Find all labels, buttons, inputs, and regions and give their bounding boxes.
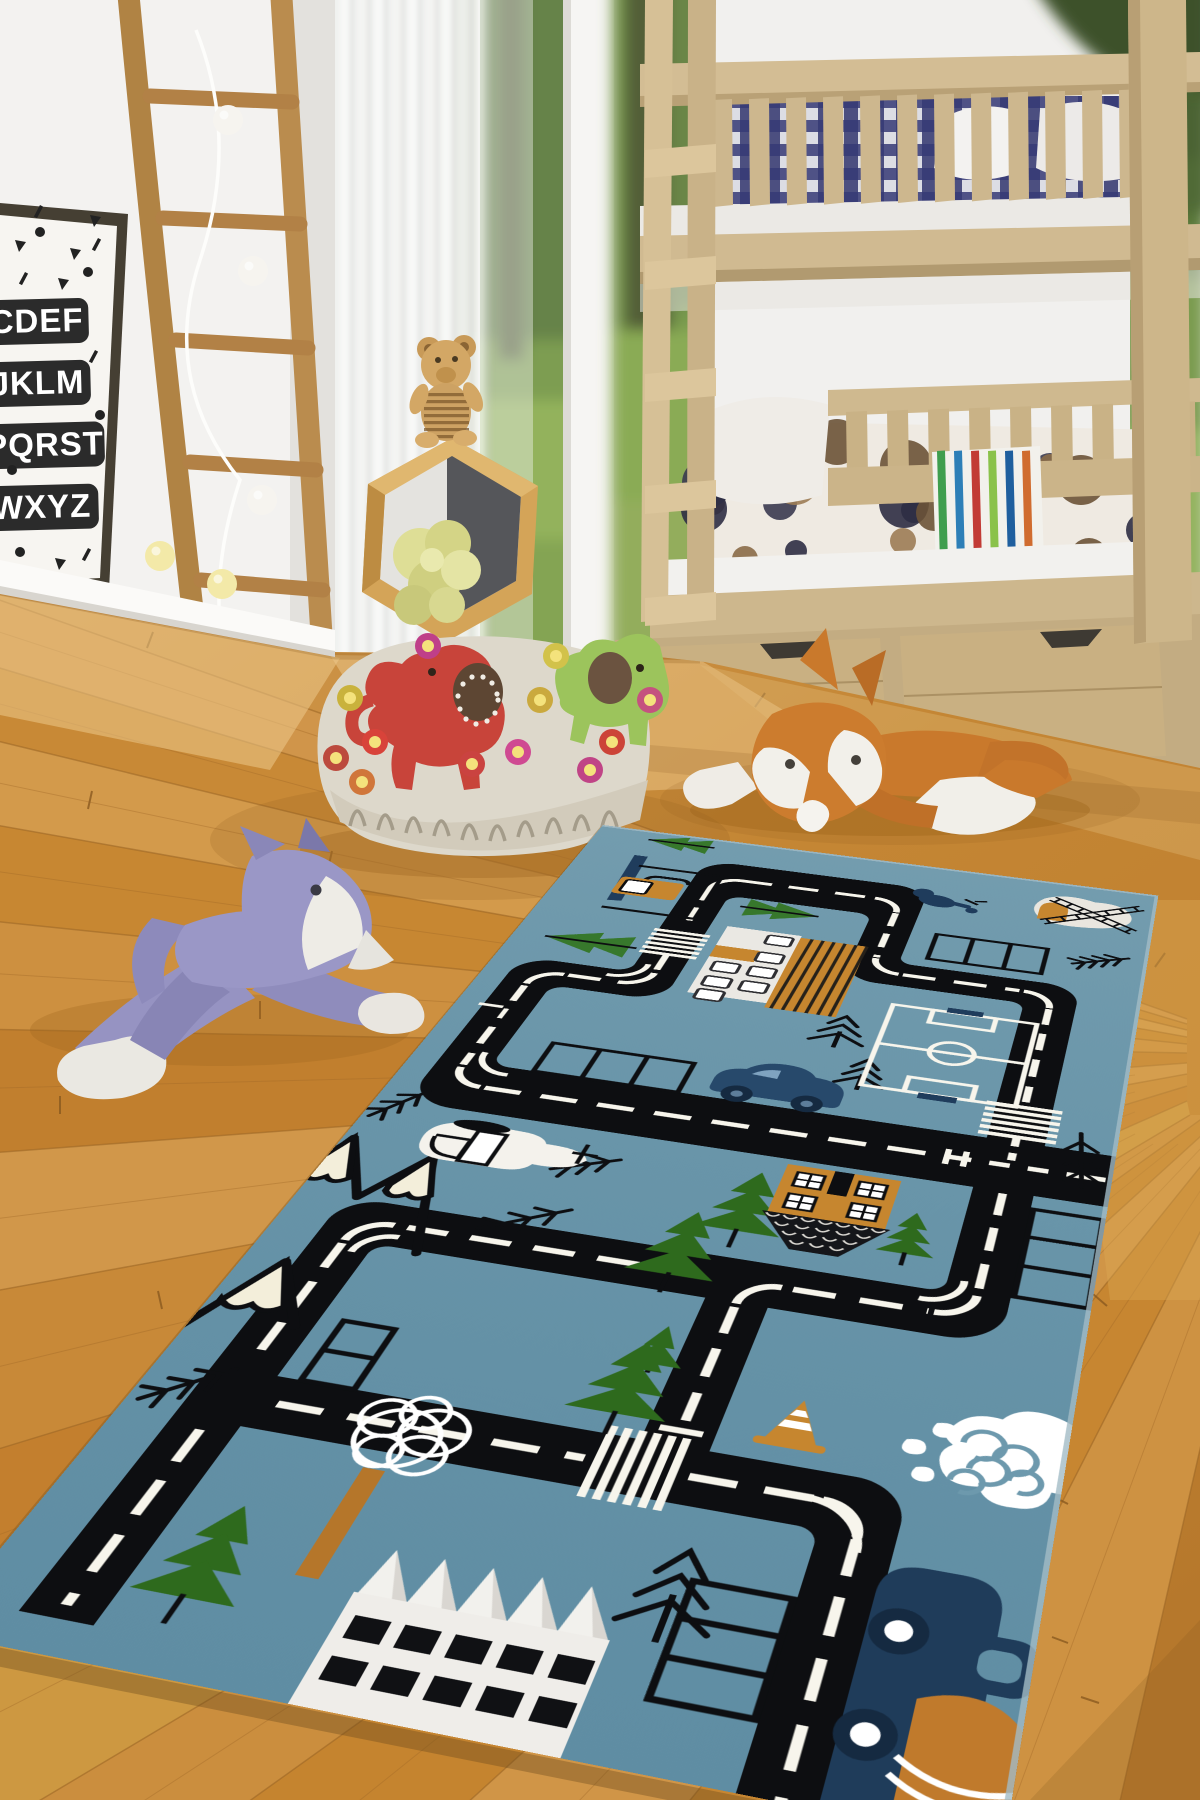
svg-text:WXYZ: WXYZ xyxy=(0,487,92,527)
svg-text:PQRST: PQRST xyxy=(0,424,104,464)
svg-text:CDEF: CDEF xyxy=(0,301,84,340)
svg-text:JKLM: JKLM xyxy=(0,363,85,402)
